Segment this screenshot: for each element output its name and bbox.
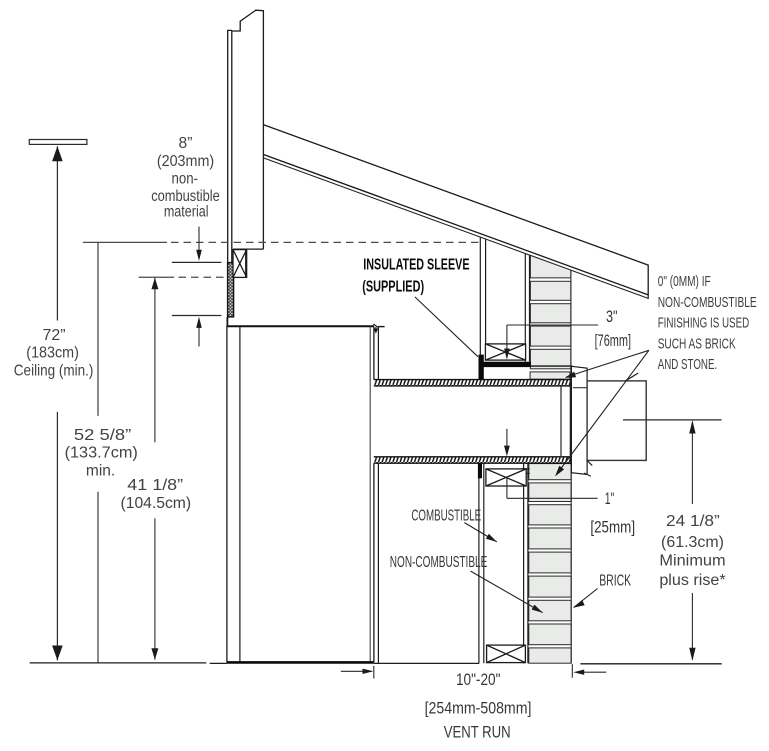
svg-text:non-: non- xyxy=(172,171,199,188)
svg-text:AND STONE.: AND STONE. xyxy=(658,356,718,373)
svg-text:SUCH AS BRICK: SUCH AS BRICK xyxy=(658,335,736,352)
svg-text:(183cm): (183cm) xyxy=(26,345,79,362)
svg-text:(104.5cm): (104.5cm) xyxy=(121,495,192,512)
svg-text:10"-20": 10"-20" xyxy=(456,671,501,689)
svg-text:COMBUSTIBLE: COMBUSTIBLE xyxy=(411,507,481,524)
svg-text:material: material xyxy=(164,204,209,221)
svg-text:(SUPPLIED): (SUPPLIED) xyxy=(362,279,424,296)
svg-text:72”: 72” xyxy=(43,327,66,344)
svg-text:41 1/8”: 41 1/8” xyxy=(127,477,183,494)
svg-text:VENT RUN: VENT RUN xyxy=(444,723,511,741)
svg-text:plus rise*: plus rise* xyxy=(659,572,725,589)
svg-text:52 5/8”: 52 5/8” xyxy=(74,427,131,444)
svg-text:min.: min. xyxy=(86,463,115,480)
svg-text:(61.3cm): (61.3cm) xyxy=(661,534,724,551)
svg-text:3": 3" xyxy=(606,307,618,326)
svg-text:[76mm]: [76mm] xyxy=(595,331,631,350)
svg-text:Ceiling (min.): Ceiling (min.) xyxy=(14,363,94,380)
svg-text:(133.7cm): (133.7cm) xyxy=(65,445,138,462)
svg-text:Minimum: Minimum xyxy=(659,553,725,570)
svg-text:8”: 8” xyxy=(179,135,193,152)
svg-text:1": 1" xyxy=(605,489,615,508)
svg-text:(203mm): (203mm) xyxy=(157,153,214,170)
svg-text:NON-COMBUSTIBLE: NON-COMBUSTIBLE xyxy=(658,294,757,311)
svg-text:INSULATED SLEEVE: INSULATED SLEEVE xyxy=(363,256,469,273)
svg-text:[254mm-508mm]: [254mm-508mm] xyxy=(425,699,532,717)
svg-text:BRICK: BRICK xyxy=(599,572,631,589)
svg-text:0" (0MM) IF: 0" (0MM) IF xyxy=(658,273,711,290)
svg-text:FINISHING IS USED: FINISHING IS USED xyxy=(658,315,750,332)
svg-text:[25mm]: [25mm] xyxy=(590,518,635,537)
svg-text:NON-COMBUSTIBLE: NON-COMBUSTIBLE xyxy=(390,554,488,571)
svg-text:24 1/8”: 24 1/8” xyxy=(666,513,720,530)
